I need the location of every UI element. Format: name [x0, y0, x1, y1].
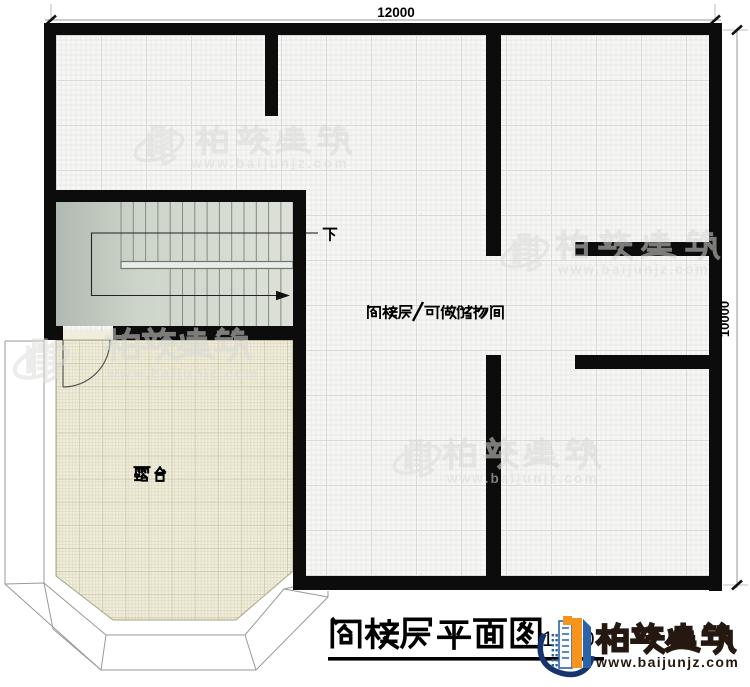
svg-text:www.baijunjz.com: www.baijunjz.com: [190, 156, 349, 171]
svg-text:10000: 10000: [717, 301, 732, 337]
svg-text:www.baijunjz.com: www.baijunjz.com: [446, 471, 599, 486]
svg-text:www.baijunjz.com: www.baijunjz.com: [595, 654, 739, 670]
svg-text:12000: 12000: [377, 5, 415, 20]
svg-text:www.baijunjz.com: www.baijunjz.com: [106, 365, 260, 381]
svg-text:www.baijunjz.com: www.baijunjz.com: [557, 262, 710, 277]
